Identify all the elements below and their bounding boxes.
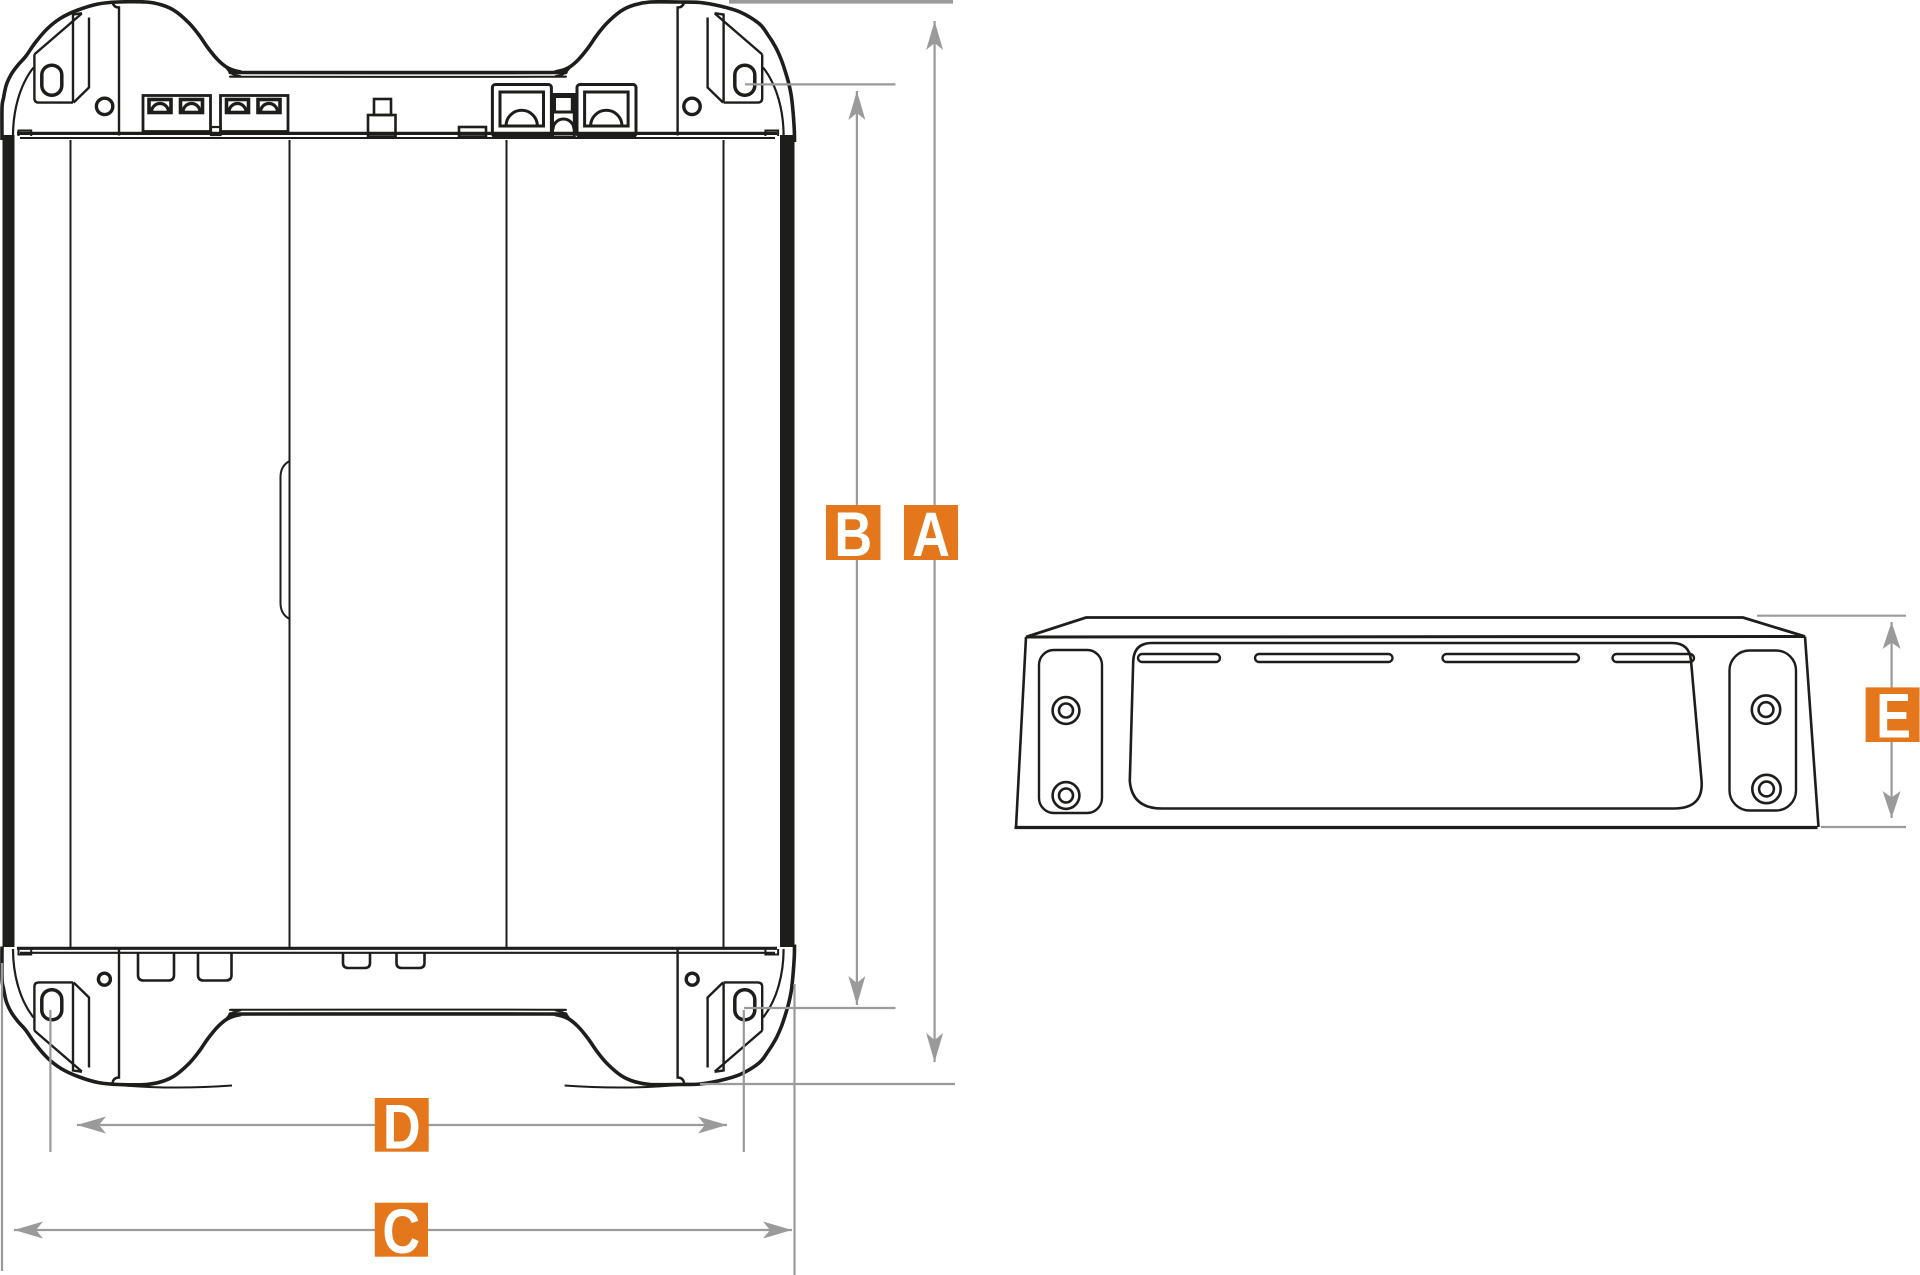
svg-text:B: B [834, 501, 872, 571]
svg-text:E: E [1876, 682, 1911, 752]
svg-text:A: A [912, 501, 950, 571]
svg-text:C: C [382, 1198, 420, 1268]
svg-text:D: D [383, 1093, 421, 1163]
